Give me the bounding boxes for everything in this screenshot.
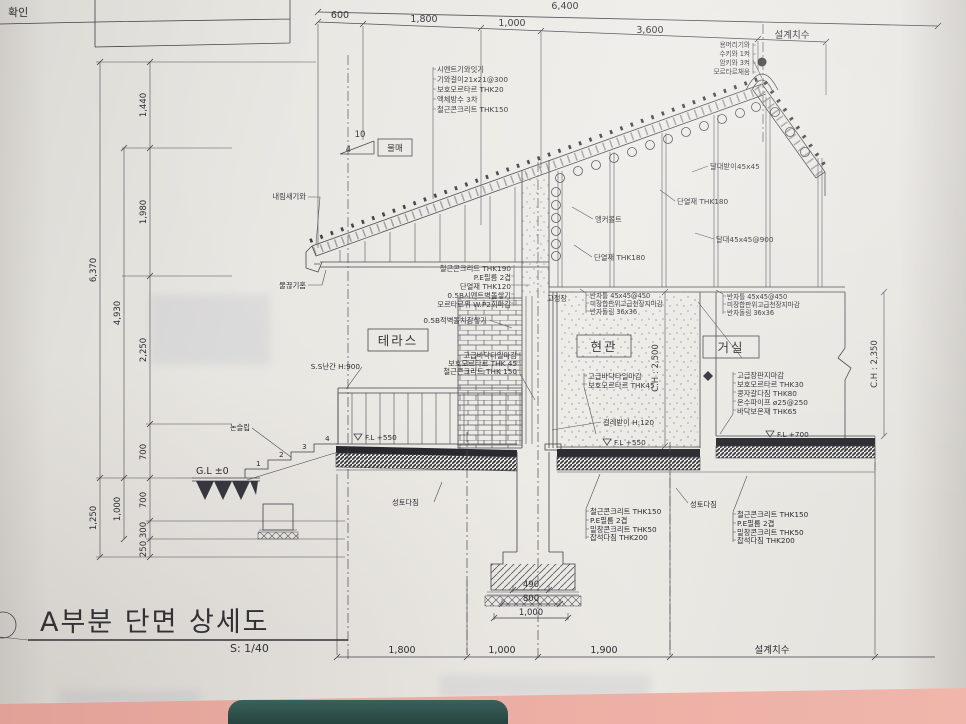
confirm-cell-label: 확인: [8, 6, 28, 19]
foundation-labels-right: 철근콘크리트 THK150 P.E필름 2겹 밑창콘크리트 THK50 잡석다짐…: [733, 476, 809, 545]
ground-hatch: [196, 481, 258, 500]
dim-left-1000: 1,000: [113, 497, 123, 521]
label-hall-mortar: 보호모르타르 THK45: [588, 381, 655, 390]
label-fixed-window: 고정창: [547, 294, 567, 303]
dim-top-overall: 6,400: [551, 1, 578, 12]
label-eave-tile: 내림새기와: [272, 192, 306, 201]
label-ceiling-finish-living: 미장합판위고급천장지마감: [727, 300, 800, 309]
steps: 1 2 3 4 논슬립: [196, 423, 338, 539]
dim-footing-800: 800: [523, 594, 539, 604]
label-found-rubble-r: 잡석다짐 THK200: [737, 536, 795, 545]
label-baseboard: 걸레받이 H:120: [603, 418, 654, 427]
label-ceiling-finish-hall: 미장합판위고급천장지마감: [590, 299, 663, 308]
ridge-labels: 용머리기와 수키와 1켜 암키와 3켜 모르타르채움: [714, 40, 762, 78]
label-ceiling-frame-hall: 반자틀 45x45@450: [590, 291, 650, 300]
living-ceiling-labels: 반자틀 45x45@450 미장합판위고급천장지마감 반자돌림 36x36: [716, 290, 800, 317]
label-ridge-tile: 용머리기와: [720, 40, 750, 49]
label-ceiling-mold-living: 반자돌림 36x36: [727, 308, 774, 317]
dim-left-300: 300: [139, 522, 149, 538]
title-scale: S: 1/40: [230, 642, 269, 655]
label-insulation-right: 단열재 THK180: [677, 197, 728, 206]
label-living-gravel: 콩자갈다짐 THK80: [737, 389, 797, 398]
dim-left-4930: 4,930: [113, 301, 123, 325]
dim-bottom-design: 설계치수: [755, 644, 790, 656]
slope-label: 물매: [387, 144, 403, 154]
dim-top-design: 설계치수: [775, 29, 810, 41]
drawing-title: A부분 단면 상세도 S: 1/40: [0, 607, 348, 655]
label-living-mortar: 보호모르타르 THK30: [737, 380, 804, 389]
dim-left-6370: 6,370: [89, 258, 99, 282]
label-found-pe-l: P.E필름 2겹: [590, 516, 627, 525]
dim-left-1250: 1,250: [89, 506, 99, 530]
label-hanger-support: 달대받이45x45: [710, 162, 760, 171]
label-terrace-rc: 철근콘크리트 THK 150: [443, 367, 517, 376]
room-living: 거실: [717, 340, 744, 355]
title-block-fragment: 확인: [0, 0, 290, 47]
dim-bottom-1000: 1,000: [488, 645, 515, 656]
slope-run: 10: [355, 130, 366, 140]
slope-mark: 10 4 물매: [340, 130, 412, 156]
label-living-paper: 고급장판지마감: [737, 371, 784, 380]
dim-left-1440: 1,440: [139, 93, 149, 117]
label-mortar-fill: 모르타르채움: [714, 67, 750, 76]
living-floor-labels: 고급장판지마감 보호모르타르 THK30 콩자갈다짐 THK80 온수파이프 ø…: [720, 371, 808, 434]
label-hanger: 달대45x45@900: [716, 235, 774, 244]
room-hall: 현관: [590, 339, 617, 354]
dim-left-700b: 700: [139, 492, 149, 508]
reference-bubble: [0, 612, 16, 638]
dim-top-600: 600: [331, 10, 349, 21]
dim-left-1980: 1,980: [139, 200, 149, 224]
label-cement-tile: 시멘트기와잇기: [437, 65, 484, 74]
bottom-dimensions: 1,800 1,000 1,900 설계치수: [334, 462, 935, 660]
label-nonslip: 논슬립: [230, 423, 250, 432]
level-terrace: F.L +550: [365, 433, 397, 442]
label-fill-mid: 성토다짐: [690, 500, 717, 509]
label-found-rc-l: 철근콘크리트 THK150: [590, 507, 662, 516]
label-tile-hanger: 기와걸이21x21@300: [437, 75, 508, 84]
level-hall: F.L +550: [614, 438, 646, 447]
label-ceiling-frame-living: 반자틀 45x45@450: [727, 292, 787, 301]
label-ceiling-mold-hall: 반자돌림 36x36: [590, 307, 637, 316]
drawing-paper: 확인 6,400 600 1,800 1,000 3,600 설계치수 용머리기…: [0, 0, 966, 724]
label-rc-190: 철근콘크리트 THK190: [440, 264, 512, 273]
label-drip-groove: 물끊기홈: [279, 281, 306, 290]
dim-top-3600: 3,600: [636, 25, 663, 36]
label-concave-tile: 암키와 3켜: [719, 58, 750, 67]
label-rc-roof: 철근콘크리트 THK150: [437, 105, 509, 114]
label-found-rubble-l: 잡석다짐 THK200: [590, 533, 648, 542]
label-pe-film: P.E필름 2겹: [474, 273, 511, 282]
dim-left-2250: 2,250: [139, 338, 149, 362]
level-living: F.L +700: [777, 430, 809, 439]
room-terrace: 테라스: [378, 333, 419, 348]
label-protect-mortar: 보호모르타르 THK20: [437, 85, 504, 94]
desk-object: [228, 700, 508, 724]
label-found-pe-r: P.E필름 2겹: [737, 519, 774, 528]
roof: [310, 58, 828, 288]
label-liquid-waterproof: 액체방수 3차: [437, 95, 478, 104]
label-insul-120: 단열재 THK120: [460, 282, 511, 291]
label-living-insul: 바닥보온재 THK65: [737, 407, 797, 416]
label-cement-brick: 0.5B시멘트벽돌쌓기: [447, 291, 511, 300]
label-fill-left: 성토다짐: [392, 498, 419, 507]
foundation: 성토다짐 성토다짐: [392, 452, 717, 606]
label-railing: S.S난간 H:900: [311, 362, 361, 371]
dim-ch-living: C.H : 2,350: [870, 340, 880, 388]
level-ground: G.L ±0: [196, 466, 229, 477]
dim-top-1800: 1,800: [410, 14, 437, 25]
attic-labels: 달대받이45x45 단열재 THK180 앵커볼트 달대45x45@900 단열…: [572, 162, 774, 262]
label-insulation-left: 단열재 THK180: [594, 253, 645, 262]
blueprint-photo: 확인 6,400 600 1,800 1,000 3,600 설계치수 용머리기…: [0, 0, 966, 724]
dim-bottom-1800: 1,800: [388, 645, 415, 656]
dim-footing-490: 490: [523, 580, 539, 590]
dim-left-250: 250: [139, 541, 149, 557]
page-title: A부분 단면 상세도: [40, 607, 270, 638]
label-found-rc-r: 철근콘크리트 THK150: [737, 510, 809, 519]
label-living-pipe: 온수파이프 ø25@250: [737, 398, 808, 407]
label-red-brick: 0.5B적벽돌치장쌓기: [423, 316, 487, 325]
door-handle-mark: [703, 371, 713, 381]
label-anchor-bolt: 앵커볼트: [595, 215, 622, 224]
step-4: 4: [325, 434, 330, 443]
step-3: 3: [302, 442, 307, 451]
dim-top-1000: 1,000: [498, 18, 525, 29]
step-1: 1: [256, 459, 261, 468]
dim-bottom-1900: 1,900: [590, 645, 617, 656]
label-hall-tile: 고급바닥타일마감: [588, 372, 642, 381]
foundation-labels-left: 철근콘크리트 THK150 P.E필름 2겹 밑창콘크리트 THK50 잡석다짐…: [586, 474, 662, 542]
label-mortar-wp: 모르타르위 W.P2회마감: [437, 300, 511, 309]
dim-left-700a: 700: [139, 444, 149, 460]
label-convex-tile: 수키와 1켜: [719, 49, 750, 58]
dim-footing-1000: 1,000: [519, 608, 543, 618]
section-drawing: 확인 6,400 600 1,800 1,000 3,600 설계치수 용머리기…: [0, 0, 966, 724]
